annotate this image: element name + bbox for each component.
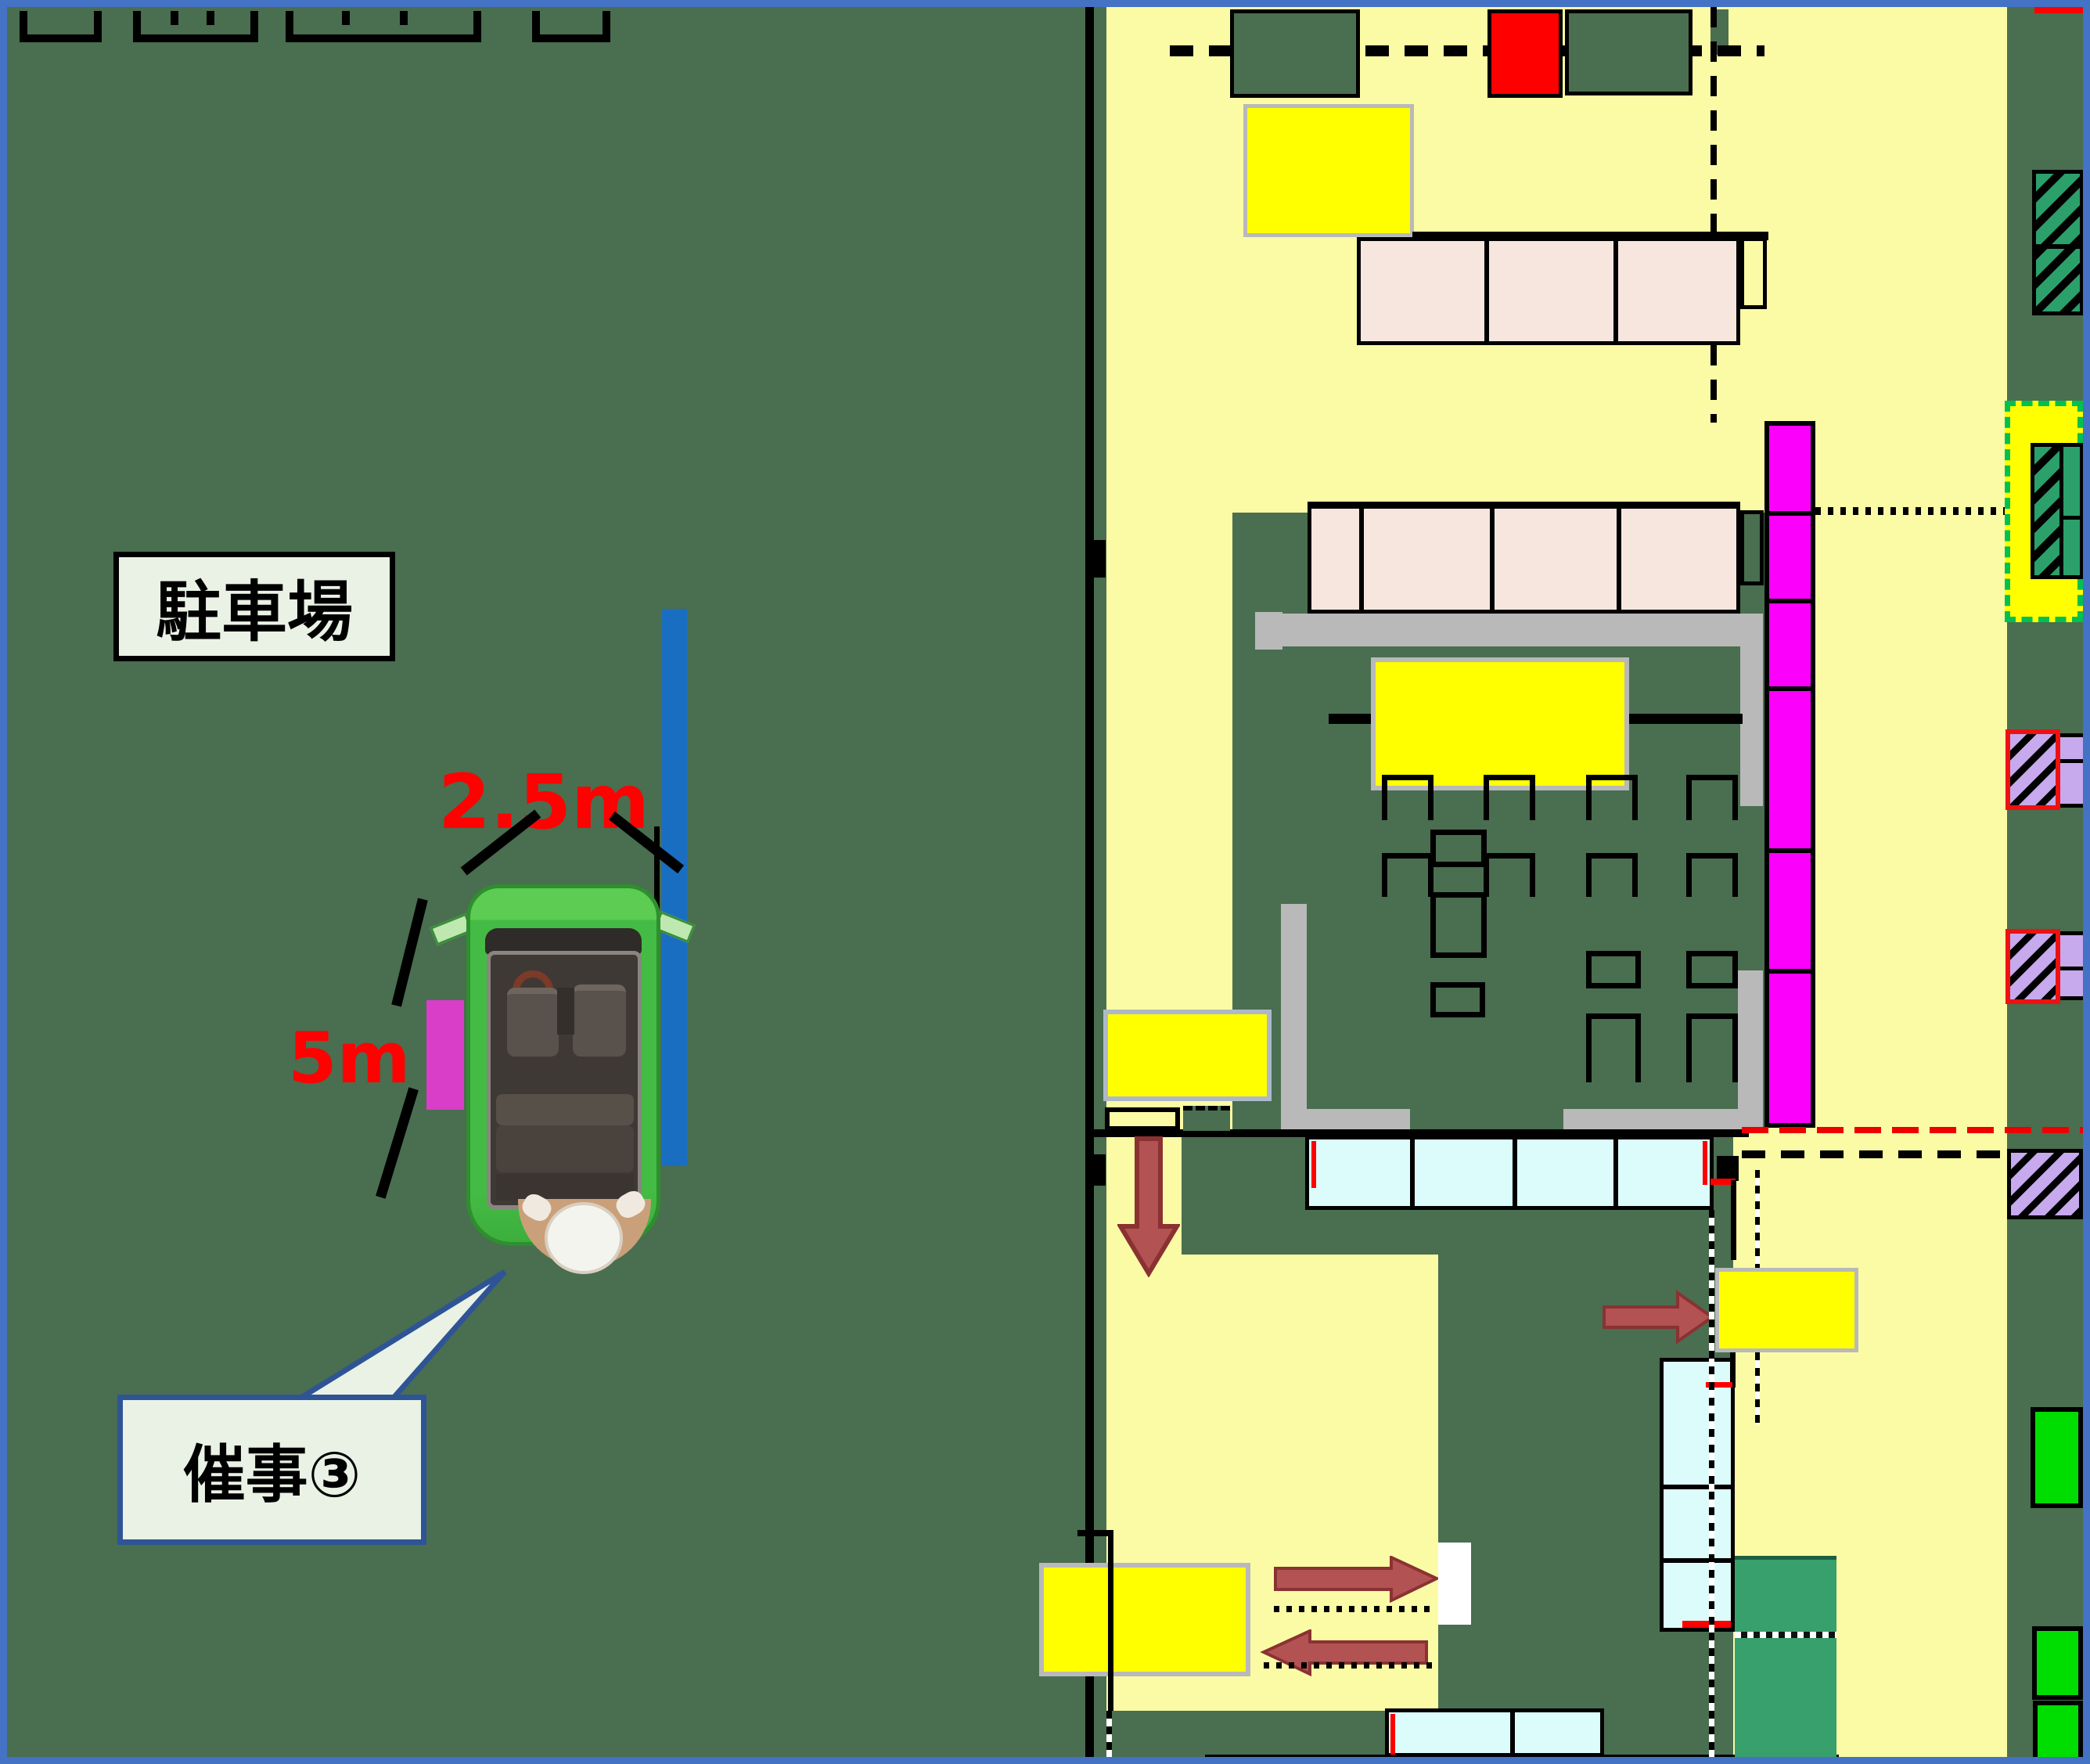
dimension-width-text: 2.5m [438, 758, 649, 846]
bright-green-case-1 [2031, 1407, 2083, 1508]
callout-tail [282, 1252, 516, 1409]
top-fixture-red [1487, 9, 1563, 98]
case-divider [2036, 244, 2080, 249]
purple-hatch-case-1 [2005, 729, 2060, 810]
case-divider [2063, 516, 2080, 520]
gray-counter-right-lower [1738, 970, 1763, 1132]
chair [1484, 853, 1535, 897]
wall-line-short [1731, 1180, 1736, 1260]
wall-nub [1717, 1156, 1739, 1181]
chair [1586, 775, 1638, 820]
red-dashed-line [1742, 1127, 2083, 1133]
main-wall [1085, 7, 1094, 1757]
dotted-divider [1735, 1632, 1836, 1638]
legend-glyph [20, 11, 102, 42]
chair [1484, 775, 1535, 820]
case-divider [1664, 1485, 1731, 1489]
shelf-divider [1484, 241, 1489, 341]
room-line-right [1629, 714, 1743, 724]
fixture-divider [1769, 848, 1811, 853]
fixture-divider [1769, 599, 1811, 603]
teal-hatch-case-mid [2031, 443, 2063, 579]
dotted-connector-line [1815, 507, 2005, 515]
wall-nub [1085, 1154, 1106, 1186]
legend-glyph [286, 11, 481, 42]
dotted-underline [1264, 1662, 1432, 1669]
parking-label: 駐車場 [113, 552, 395, 661]
vehicle-door-magenta [426, 1000, 464, 1110]
wall-nub [1085, 540, 1106, 578]
corridor-marker-box [1105, 1107, 1180, 1131]
bright-green-case-3 [2033, 1701, 2083, 1757]
white-box [1438, 1543, 1471, 1625]
bright-green-case-2 [2032, 1626, 2083, 1700]
shelf-row-1 [1357, 237, 1740, 345]
dimension-tick [391, 898, 427, 1007]
vehicle-seat-front-left [507, 988, 559, 1057]
promo-box-1 [1243, 104, 1414, 237]
blue-partition-bar [662, 609, 687, 1166]
corridor-wall-line [1108, 1532, 1113, 1711]
promo-box-4 [1715, 1268, 1858, 1352]
parking-label-text: 駐車場 [156, 560, 353, 654]
purple-case-side-2 [2060, 931, 2083, 1000]
shelf-divider [1613, 241, 1618, 341]
gray-wall-left [1281, 904, 1307, 1132]
black-dashed-line [1742, 1150, 2005, 1158]
red-mark [1311, 1141, 1316, 1188]
legend-glyph-mark [171, 11, 178, 25]
chair [1686, 853, 1738, 897]
dotted-wall-line [1755, 1170, 1760, 1268]
vehicle-cargo [496, 1174, 634, 1201]
fixture-divider [1769, 686, 1811, 691]
red-mark [1682, 1621, 1731, 1628]
counter-notch [1255, 612, 1282, 650]
case-divider [2060, 967, 2083, 970]
magenta-fixture-strip [1764, 421, 1815, 1128]
floorplan-canvas: 駐車場 2.5m 5m [0, 0, 2090, 1764]
chair [1382, 853, 1434, 897]
dotted-wall-line [1106, 1711, 1112, 1757]
table-open [1686, 1013, 1738, 1082]
promo-box-corridor [1103, 1010, 1272, 1101]
shelf-end-bracket [1740, 237, 1767, 309]
dimension-tick [376, 1087, 419, 1198]
legend-glyph-mark [400, 11, 408, 25]
reference-dashed-vline [1709, 1210, 1714, 1757]
vehicle-bench-seat [496, 1125, 634, 1172]
flow-arrow-right-long [1274, 1556, 1440, 1603]
top-right-red-mark [2034, 7, 2083, 13]
red-mark [1390, 1714, 1395, 1756]
purple-hatch-case-2 [2005, 929, 2060, 1004]
dimension-length: 5m [288, 1017, 397, 1096]
case-divider [1664, 1558, 1731, 1563]
vehicle-bench-back [496, 1094, 634, 1125]
chair [1382, 775, 1434, 820]
case-divider [1410, 1139, 1415, 1206]
reference-dashed-vline [1710, 7, 1717, 236]
flow-arrow-left-long [1260, 1629, 1428, 1676]
legend-glyph [532, 11, 610, 42]
cyan-case-bottom [1385, 1708, 1604, 1757]
table-small [1586, 951, 1641, 988]
shelf-divider [1490, 509, 1495, 610]
corridor-green-box [1183, 1106, 1230, 1131]
dotted-wall-line [1755, 1352, 1760, 1424]
dimension-length-text: 5m [288, 1017, 410, 1100]
case-divider [1613, 1139, 1618, 1206]
chair [1686, 775, 1738, 820]
case-divider [1513, 1139, 1517, 1206]
table-small [1430, 982, 1485, 1017]
teal-case-mid-side [2063, 443, 2083, 579]
purple-case-side-1 [2060, 733, 2083, 808]
vehicle-seat-front-right [573, 985, 626, 1057]
person [545, 1202, 623, 1274]
shelf-row-2 [1308, 502, 1740, 614]
table-open [1586, 1013, 1641, 1082]
legend-glyph-mark [207, 11, 214, 25]
wallside-strip [1094, 7, 1106, 1757]
top-fixture-green [1565, 9, 1693, 95]
gray-wall-left-foot [1307, 1109, 1410, 1132]
fixture-divider [1769, 511, 1811, 516]
case-divider [1510, 1712, 1515, 1753]
table-large [1430, 892, 1487, 958]
gray-counter-right-upper [1740, 614, 1763, 806]
purple-hatch-case-3 [2007, 1149, 2083, 1219]
site-background: 駐車場 2.5m 5m [7, 7, 2083, 1757]
promo-box-3 [1039, 1563, 1250, 1676]
legend-glyph-mark [342, 11, 350, 25]
flow-arrow-down [1117, 1136, 1180, 1277]
sea-green-case-2 [1735, 1638, 1836, 1757]
sea-green-case-1 [1735, 1556, 1836, 1632]
legend-glyph [133, 11, 258, 42]
shelf-divider [1617, 509, 1621, 610]
gray-counter-top [1282, 614, 1763, 646]
red-mark [1703, 1141, 1707, 1185]
vehicle-console [557, 988, 574, 1035]
gray-wall-bottom-right [1563, 1109, 1739, 1132]
case-divider [2060, 759, 2083, 763]
event-callout-text: 催事③ [183, 1424, 362, 1515]
top-fixture-green [1230, 9, 1360, 98]
corridor-wall-tick [1077, 1530, 1113, 1536]
shelf-end-bracket [1740, 510, 1764, 585]
table-small [1686, 951, 1738, 988]
table-small [1430, 830, 1487, 867]
promo-box-2 [1371, 657, 1629, 790]
reference-dashed-vline [1710, 345, 1717, 423]
shelf-divider [1359, 509, 1364, 610]
chair [1586, 853, 1638, 897]
event-callout: 催事③ [117, 1395, 426, 1545]
cyan-case-column [1660, 1358, 1735, 1632]
teal-hatch-case-top [2032, 170, 2083, 315]
fixture-divider [1769, 969, 1811, 974]
flow-arrow-right-short [1603, 1290, 1716, 1345]
cyan-case-row [1305, 1136, 1714, 1210]
room-line-left [1329, 714, 1371, 724]
dotted-underline [1274, 1606, 1434, 1612]
